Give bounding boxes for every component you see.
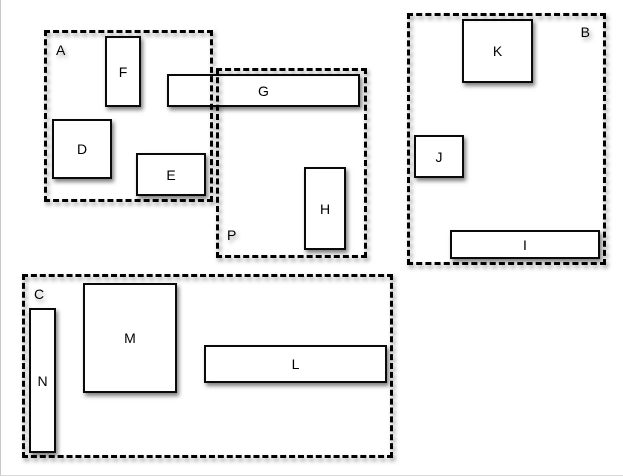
region-label: P	[227, 228, 236, 242]
diagram-canvas: F D E G H K J I M N L A P B C	[1, 0, 623, 475]
page: F D E G H K J I M N L A P B C	[0, 0, 623, 476]
dashed-region-a[interactable]: A	[44, 30, 213, 202]
dashed-region-p[interactable]: P	[216, 68, 367, 258]
region-label: A	[56, 43, 65, 57]
dashed-region-c[interactable]: C	[22, 274, 393, 458]
dashed-region-b[interactable]: B	[407, 13, 606, 265]
region-label: C	[34, 287, 44, 301]
region-label: B	[581, 25, 590, 39]
